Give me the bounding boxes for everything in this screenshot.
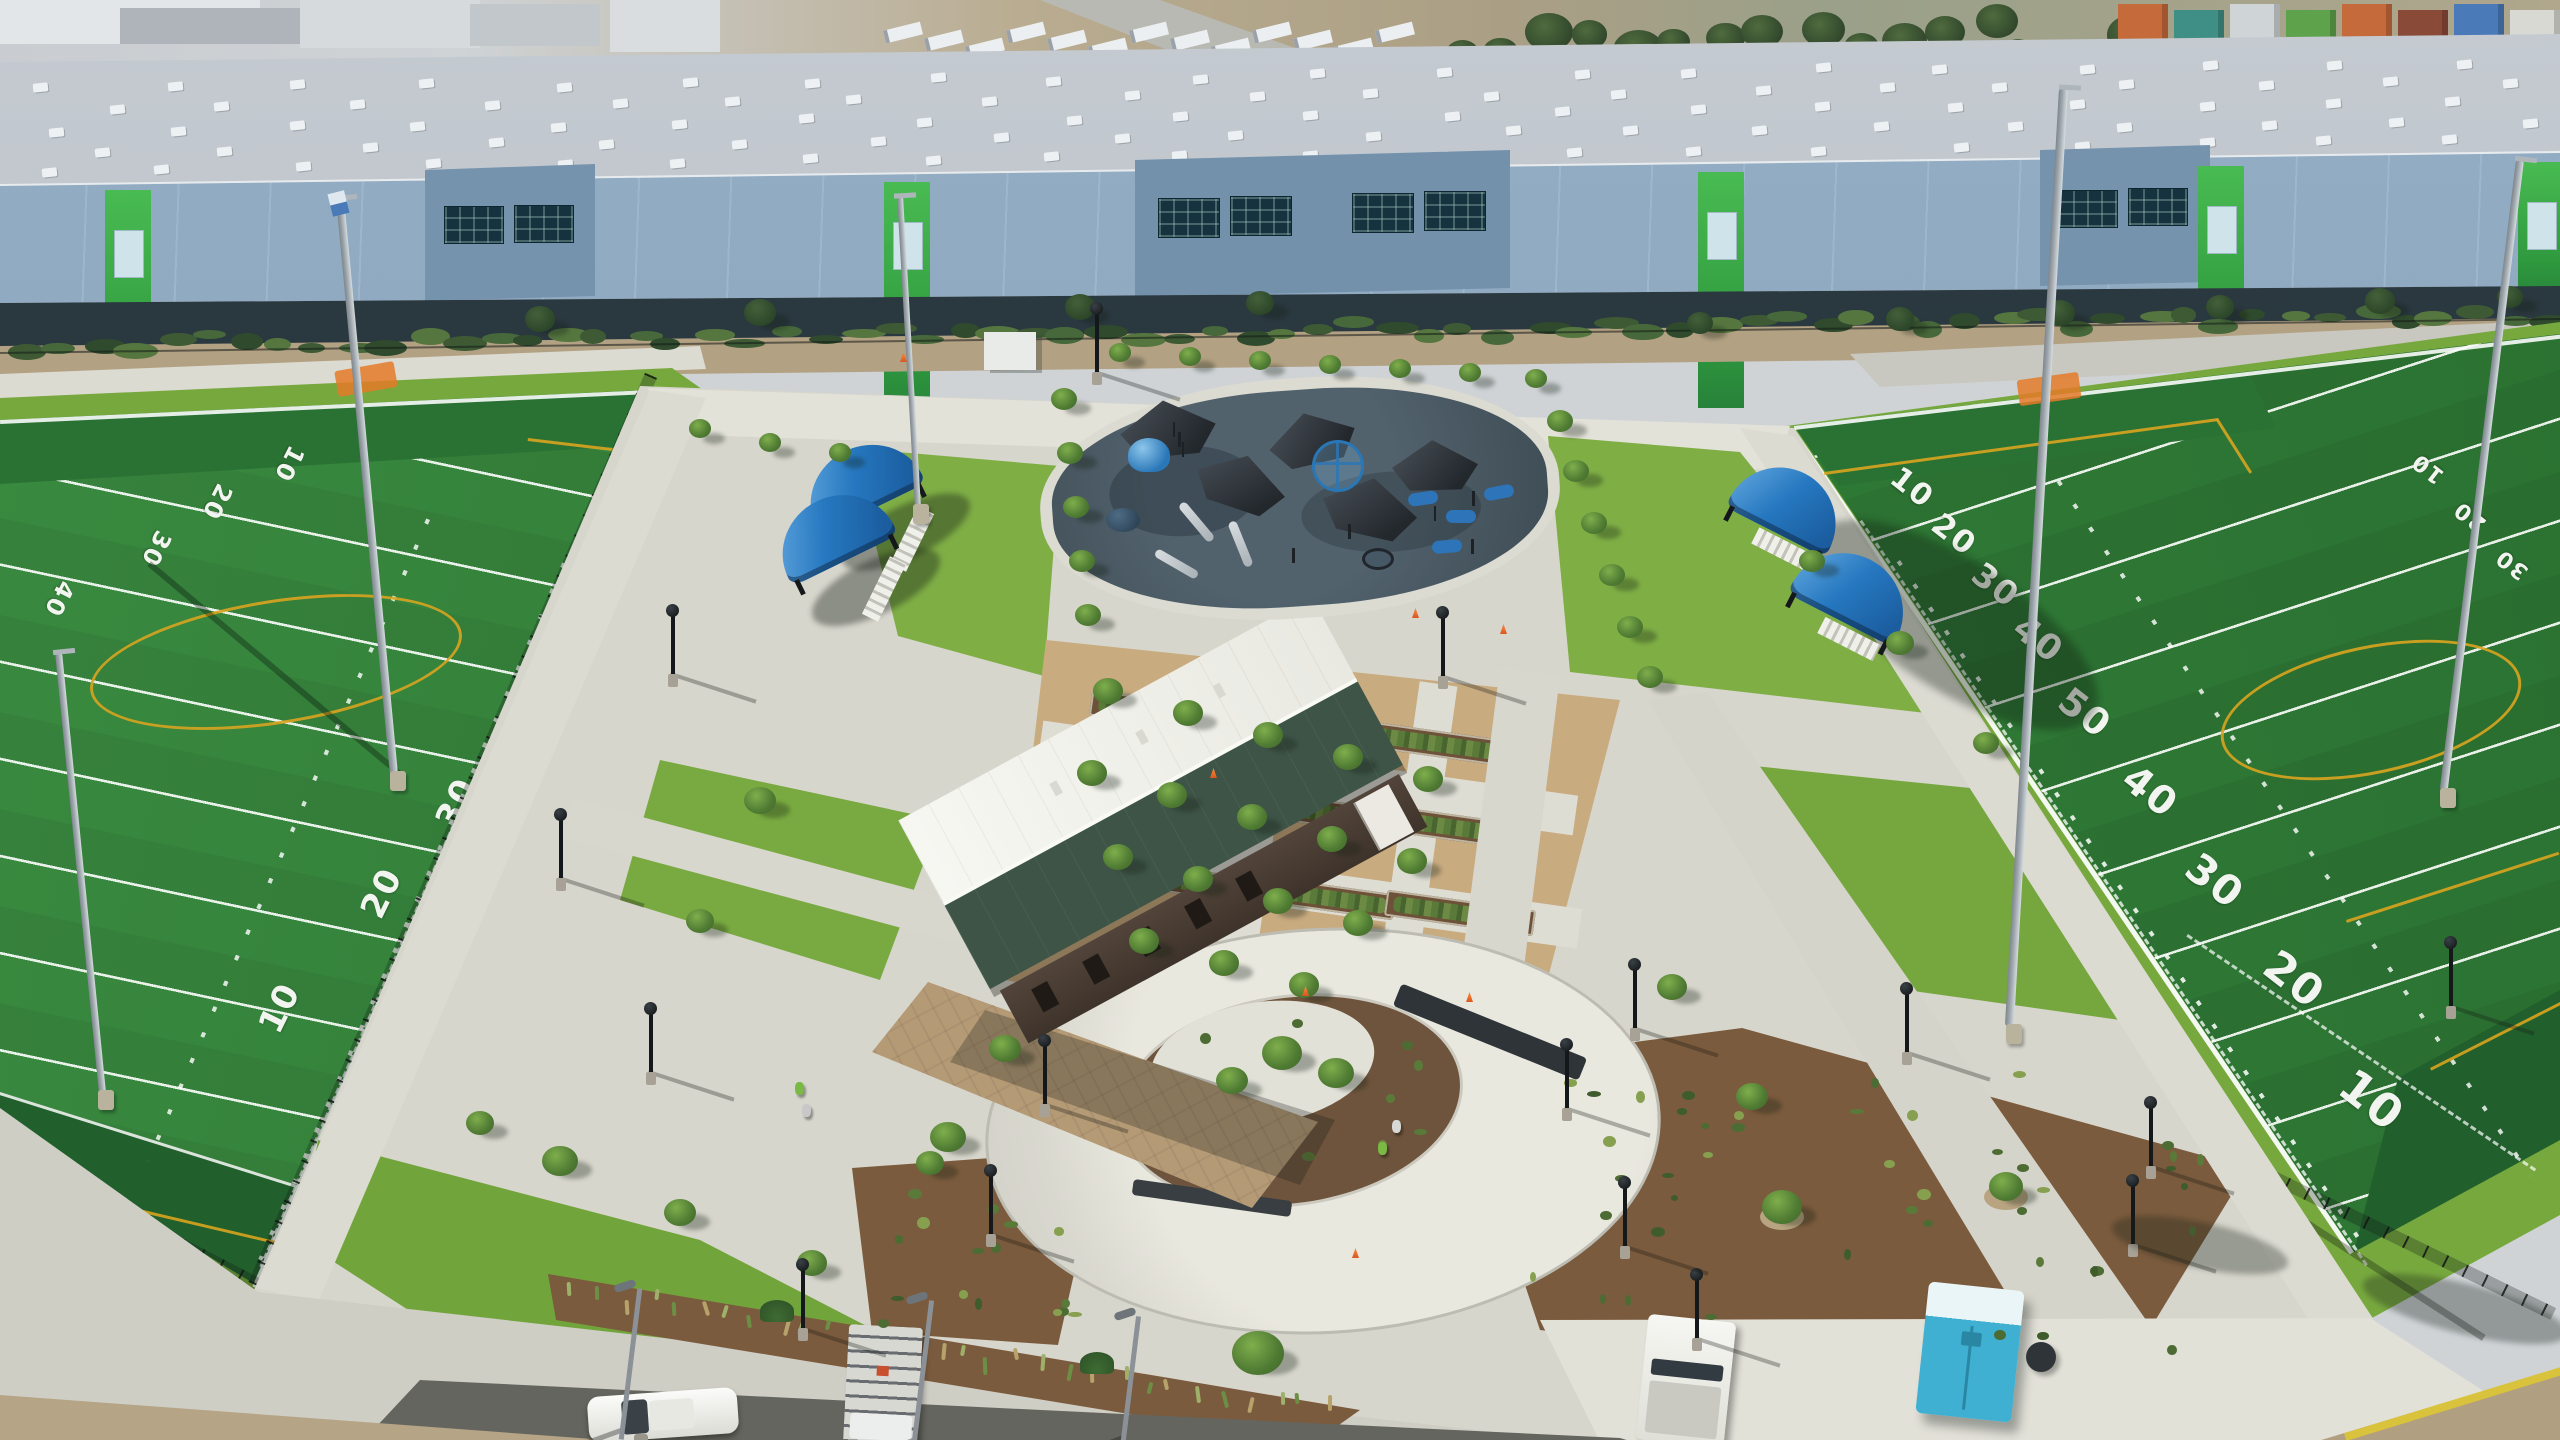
warehouse-window bbox=[1230, 196, 1292, 236]
tree bbox=[1799, 550, 1825, 572]
truck-flag bbox=[876, 1366, 889, 1377]
aerial-park-photo: 102030405010203040 102030405040302010102… bbox=[0, 0, 2560, 1440]
play-globe-climber bbox=[1312, 440, 1364, 492]
pole-base bbox=[2440, 788, 2456, 808]
tree bbox=[1232, 1331, 1284, 1375]
roof-vent bbox=[2389, 117, 2405, 128]
palm-plant bbox=[760, 1300, 794, 1322]
globe-bars bbox=[1336, 443, 1339, 489]
roof-vent bbox=[724, 96, 740, 107]
roof-vent bbox=[1173, 111, 1189, 122]
shrub bbox=[1636, 1091, 1645, 1103]
grass-tuft bbox=[983, 1357, 988, 1375]
roof-vent bbox=[556, 82, 572, 93]
tree bbox=[1109, 343, 1131, 362]
roof-vent bbox=[1756, 85, 1772, 96]
shrub bbox=[1053, 1309, 1063, 1316]
tree bbox=[1069, 550, 1095, 572]
roof-vent bbox=[799, 113, 815, 124]
tree bbox=[1075, 604, 1101, 626]
light-pole-stem bbox=[1095, 312, 1099, 374]
roof-vent bbox=[1228, 130, 1244, 141]
light-pole-stem bbox=[2149, 1106, 2153, 1168]
tree bbox=[759, 433, 781, 452]
light-pole-stem bbox=[1441, 616, 1445, 678]
play-post bbox=[1292, 548, 1295, 563]
tree bbox=[1063, 496, 1089, 518]
shrub bbox=[1731, 1123, 1745, 1132]
roof-vent bbox=[551, 122, 567, 133]
bush bbox=[231, 333, 264, 350]
roof-vent bbox=[1484, 91, 1500, 102]
tree bbox=[1886, 631, 1914, 655]
shrub bbox=[1054, 1227, 1064, 1235]
worker bbox=[1392, 1120, 1401, 1133]
bush bbox=[695, 329, 735, 340]
tree bbox=[1581, 512, 1607, 534]
tree bbox=[1319, 355, 1341, 374]
tree bbox=[1246, 291, 1274, 315]
light-pole-stem bbox=[649, 1012, 653, 1074]
light-pole-base bbox=[2446, 1006, 2456, 1019]
light-pole-head bbox=[644, 1002, 657, 1015]
shrub bbox=[1671, 1195, 1678, 1201]
light-pole-head bbox=[2144, 1096, 2157, 1109]
roof-vent bbox=[2200, 101, 2216, 112]
tree bbox=[1183, 866, 1213, 892]
bush bbox=[1414, 329, 1444, 343]
tree bbox=[525, 306, 555, 332]
bush bbox=[1333, 316, 1374, 328]
roof-vent bbox=[917, 117, 933, 128]
roof-vent bbox=[804, 78, 820, 89]
shrub bbox=[1917, 1189, 1931, 1200]
light-pole-head bbox=[1628, 958, 1641, 971]
roof-vent bbox=[410, 121, 426, 132]
grass-tuft bbox=[1328, 1395, 1332, 1411]
tree bbox=[1262, 1036, 1302, 1070]
pole-base bbox=[390, 771, 406, 791]
bush bbox=[1767, 311, 1807, 322]
green-stripe-window bbox=[114, 230, 144, 278]
shrub bbox=[1682, 1091, 1695, 1100]
roof-vent bbox=[1555, 106, 1571, 117]
roof-vent bbox=[418, 78, 434, 89]
roof-vent bbox=[2007, 121, 2023, 132]
background-tree bbox=[1976, 4, 2018, 38]
tree bbox=[1459, 363, 1481, 382]
light-pole-base bbox=[556, 878, 566, 891]
bush bbox=[2090, 313, 2125, 324]
shrub bbox=[1703, 1152, 1712, 1158]
tree bbox=[1637, 666, 1663, 688]
shrub bbox=[1662, 1173, 1674, 1178]
roof-vent bbox=[2116, 122, 2132, 133]
tree bbox=[1173, 700, 1203, 726]
roof-vent bbox=[925, 155, 941, 166]
tree bbox=[1333, 744, 1363, 770]
roof-vent bbox=[349, 99, 365, 110]
tree bbox=[829, 443, 851, 462]
shrub bbox=[1677, 1108, 1687, 1114]
light-pole-stem bbox=[559, 818, 563, 880]
grass-tuft bbox=[566, 1282, 571, 1297]
bush bbox=[2282, 311, 2310, 321]
toilet-vent bbox=[1961, 1331, 1982, 1347]
roof-vent bbox=[670, 158, 686, 169]
tree bbox=[930, 1122, 966, 1153]
shrub bbox=[1923, 1220, 1933, 1227]
light-pole-stem bbox=[1043, 1044, 1047, 1106]
green-stripe-window bbox=[2207, 206, 2237, 254]
pole-base bbox=[2006, 1024, 2022, 1044]
portable-toilet bbox=[1915, 1281, 2024, 1422]
tree bbox=[1547, 410, 1573, 432]
roof-vent bbox=[1610, 89, 1626, 100]
shrub bbox=[1651, 1227, 1665, 1237]
light-pole-base bbox=[798, 1328, 808, 1341]
grass-tuft bbox=[625, 1300, 630, 1315]
warehouse-window bbox=[514, 205, 574, 243]
play-rock bbox=[1106, 508, 1140, 532]
roof-vent bbox=[296, 161, 312, 172]
light-pole-base bbox=[1438, 676, 1448, 689]
truck-cab bbox=[849, 1412, 912, 1440]
play-post bbox=[1434, 506, 1437, 521]
tree bbox=[1209, 950, 1239, 976]
roof-vent bbox=[1816, 62, 1832, 73]
bush bbox=[2456, 305, 2493, 319]
roof-vent bbox=[1567, 147, 1583, 158]
roof-vent bbox=[2502, 78, 2518, 89]
tree bbox=[686, 909, 714, 933]
background-building bbox=[300, 0, 480, 48]
tree bbox=[542, 1146, 578, 1177]
shrub bbox=[959, 1290, 968, 1298]
tree bbox=[1237, 804, 1267, 830]
roof-vent bbox=[598, 139, 614, 150]
light-pole-stem bbox=[1905, 992, 1909, 1054]
roof-vent bbox=[1574, 70, 1590, 81]
light-pole-stem bbox=[801, 1268, 805, 1330]
tree bbox=[1413, 766, 1443, 792]
bush bbox=[1268, 329, 1295, 339]
roof-vent bbox=[2315, 135, 2331, 146]
shrub bbox=[1061, 1299, 1069, 1308]
shrub bbox=[1600, 1211, 1611, 1221]
shrub bbox=[1603, 1136, 1616, 1147]
light-pole-head bbox=[2126, 1174, 2139, 1187]
palm-plant bbox=[1080, 1352, 1114, 1374]
shrub bbox=[1992, 1149, 2003, 1155]
roof-vent bbox=[109, 104, 125, 115]
tree bbox=[2365, 288, 2395, 314]
play-post bbox=[1348, 524, 1351, 539]
shrub bbox=[895, 1235, 903, 1244]
shrub bbox=[2162, 1141, 2174, 1150]
shrub bbox=[1871, 1078, 1879, 1088]
shrub bbox=[1705, 1314, 1716, 1320]
tree bbox=[1389, 359, 1411, 378]
light-pole-stem bbox=[1695, 1278, 1699, 1340]
light-pole-base bbox=[1092, 372, 1102, 385]
background-building bbox=[610, 0, 720, 52]
light-pole-base bbox=[1620, 1246, 1630, 1259]
roof-vent bbox=[2382, 76, 2398, 87]
shrub bbox=[1906, 1206, 1918, 1214]
roof-vent bbox=[1303, 110, 1319, 121]
tree bbox=[1563, 460, 1589, 482]
roof-vent bbox=[2441, 135, 2457, 146]
play-post bbox=[1471, 539, 1474, 554]
roof-vent bbox=[489, 137, 505, 148]
tree bbox=[1657, 974, 1687, 1000]
bush bbox=[1202, 326, 1228, 336]
light-pole-head bbox=[1038, 1034, 1051, 1047]
shrub bbox=[1994, 1330, 2005, 1341]
roof-vent bbox=[1623, 125, 1639, 136]
light-pole-head bbox=[1618, 1176, 1631, 1189]
shrub bbox=[2197, 1154, 2204, 1166]
tree bbox=[916, 1151, 944, 1175]
light-pole-stem bbox=[2449, 946, 2453, 1008]
light-pole-base bbox=[668, 674, 678, 687]
light-pole-stem bbox=[1633, 968, 1637, 1030]
crescent-shrub bbox=[1292, 1019, 1303, 1028]
roof-vent bbox=[2457, 59, 2473, 70]
tree bbox=[1179, 347, 1201, 366]
tree bbox=[1397, 848, 1427, 874]
roof-vent bbox=[981, 96, 997, 107]
shrub bbox=[1701, 1123, 1710, 1128]
roof-vent bbox=[930, 72, 946, 83]
light-pole-base bbox=[1902, 1052, 1912, 1065]
roof-vent bbox=[1045, 76, 1061, 87]
roof-vent bbox=[94, 147, 110, 158]
shrub bbox=[917, 1217, 930, 1229]
green-stripe-window bbox=[893, 222, 923, 270]
roof-vent bbox=[213, 101, 229, 112]
roof-vent bbox=[1444, 111, 1460, 122]
shipping-container bbox=[2118, 4, 2168, 44]
tree bbox=[1263, 888, 1293, 914]
play-spinner bbox=[1362, 548, 1394, 570]
play-post bbox=[1178, 432, 1181, 447]
tree bbox=[1051, 388, 1077, 410]
roof-vent bbox=[2522, 118, 2538, 129]
roof-vent bbox=[1751, 126, 1767, 137]
bush bbox=[2171, 307, 2196, 322]
street-lamp-base bbox=[634, 1434, 648, 1440]
roof-vent bbox=[485, 100, 501, 111]
tree bbox=[1973, 732, 1999, 754]
warehouse-window bbox=[2058, 190, 2118, 228]
roof-vent bbox=[42, 167, 58, 178]
tree bbox=[1599, 564, 1625, 586]
roof-vent bbox=[1931, 64, 1947, 75]
roof-vent bbox=[1193, 74, 1209, 85]
tree bbox=[1617, 616, 1643, 638]
tree bbox=[1886, 307, 1914, 331]
shrub bbox=[1004, 1221, 1019, 1227]
roof-vent bbox=[32, 82, 48, 93]
tree bbox=[1343, 910, 1373, 936]
roof-vent bbox=[2079, 64, 2095, 75]
roof-vent bbox=[48, 127, 64, 138]
light-pole-base bbox=[986, 1234, 996, 1247]
shrub bbox=[2167, 1345, 2177, 1356]
light-pole-base bbox=[1040, 1104, 1050, 1117]
roof-vent bbox=[426, 158, 442, 169]
roof-vent bbox=[2202, 60, 2218, 71]
roof-vent bbox=[1686, 146, 1702, 157]
shrub bbox=[1907, 1110, 1918, 1121]
tree bbox=[1317, 826, 1347, 852]
play-dome bbox=[1128, 438, 1170, 472]
car-roof bbox=[649, 1398, 695, 1431]
green-stripe-window bbox=[1707, 212, 1737, 260]
roof-vent bbox=[846, 94, 862, 105]
warehouse-window bbox=[1352, 193, 1414, 233]
roof-vent bbox=[1114, 133, 1130, 144]
light-pole-base bbox=[1692, 1338, 1702, 1351]
tree bbox=[1525, 369, 1547, 388]
warehouse-window bbox=[444, 206, 504, 244]
roof-vent bbox=[171, 126, 187, 137]
shrub bbox=[2017, 1207, 2028, 1215]
shrub bbox=[1530, 1272, 1536, 1282]
light-pole-base bbox=[1630, 1028, 1640, 1041]
background-building bbox=[470, 4, 600, 46]
pickup-windshield bbox=[1651, 1358, 1724, 1381]
tree bbox=[1129, 928, 1159, 954]
green-accent-stripe bbox=[1698, 172, 1744, 408]
light-pole-base bbox=[646, 1072, 656, 1085]
play-post bbox=[1472, 491, 1475, 506]
roof-vent bbox=[1811, 146, 1827, 157]
tree bbox=[1077, 760, 1107, 786]
play-post bbox=[1173, 422, 1176, 437]
warehouse-window bbox=[2128, 188, 2188, 226]
worker bbox=[1378, 1142, 1387, 1155]
tree bbox=[1093, 678, 1123, 704]
tree bbox=[1253, 722, 1283, 748]
white-pickup-truck bbox=[1636, 1314, 1737, 1440]
green-stripe-window bbox=[2527, 202, 2557, 250]
roof-vent bbox=[217, 146, 233, 157]
tree bbox=[1249, 351, 1271, 370]
tree bbox=[1103, 844, 1133, 870]
roof-vent bbox=[802, 153, 818, 164]
shrub bbox=[1884, 1160, 1895, 1168]
light-pole-head bbox=[554, 808, 567, 821]
light-pole-head bbox=[666, 604, 679, 617]
tree bbox=[1762, 1190, 1802, 1224]
light-pole-head bbox=[1436, 606, 1449, 619]
roof-vent bbox=[1506, 125, 1522, 136]
tree bbox=[466, 1111, 494, 1135]
grass-tuft bbox=[672, 1302, 677, 1317]
roof-vent bbox=[1067, 115, 1083, 126]
light-pole-head bbox=[1560, 1038, 1573, 1051]
worker bbox=[795, 1082, 804, 1095]
light-pole-head bbox=[1900, 982, 1913, 995]
roof-vent bbox=[1953, 142, 1969, 153]
warehouse-window bbox=[1158, 198, 1220, 238]
light-pole-stem bbox=[1623, 1186, 1627, 1248]
roof-vent bbox=[612, 98, 628, 109]
roof-vent bbox=[2445, 96, 2461, 107]
play-climber-blue bbox=[1446, 510, 1476, 523]
light-pole-stem bbox=[671, 614, 675, 676]
pickup-bed bbox=[1644, 1380, 1721, 1439]
shrub bbox=[2037, 1332, 2049, 1341]
light-pole-head bbox=[1090, 302, 1103, 315]
utility-shed bbox=[984, 332, 1036, 370]
roof-vent bbox=[362, 142, 378, 153]
pole-base bbox=[913, 504, 929, 524]
light-pole-stem bbox=[1565, 1048, 1569, 1110]
roof-vent bbox=[1366, 131, 1382, 142]
roof-vent bbox=[2327, 60, 2343, 71]
roof-vent bbox=[290, 120, 306, 131]
grass-tuft bbox=[1040, 1354, 1045, 1371]
roof-vent bbox=[2119, 79, 2135, 90]
utility-truck bbox=[843, 1324, 923, 1440]
background-tree bbox=[1572, 20, 1607, 48]
light-pole-head bbox=[2444, 936, 2457, 949]
light-pole-base bbox=[1562, 1108, 1572, 1121]
shrub bbox=[972, 1248, 983, 1254]
tree bbox=[2206, 295, 2234, 319]
pole-base bbox=[98, 1090, 114, 1110]
grass-tuft bbox=[595, 1286, 599, 1300]
roof-vent bbox=[672, 119, 688, 130]
tree bbox=[1318, 1058, 1354, 1089]
shrub bbox=[2170, 1151, 2178, 1162]
trash-can bbox=[2026, 1342, 2056, 1372]
bush bbox=[443, 336, 487, 351]
tree bbox=[1057, 442, 1083, 464]
tree bbox=[1687, 312, 1713, 334]
bush bbox=[580, 329, 606, 345]
light-pole-base bbox=[2146, 1166, 2156, 1179]
roof-vent bbox=[1814, 101, 1830, 112]
light-pole-stem bbox=[989, 1174, 993, 1236]
roof-vent bbox=[1681, 68, 1697, 79]
roof-vent bbox=[1043, 151, 1059, 162]
roof-vent bbox=[289, 79, 305, 90]
grass-tuft bbox=[1281, 1392, 1285, 1405]
play-post bbox=[1182, 442, 1185, 457]
tree bbox=[1157, 782, 1187, 808]
light-pole-head bbox=[796, 1258, 809, 1271]
roof-vent bbox=[1947, 102, 1963, 113]
worker bbox=[802, 1104, 811, 1117]
tree bbox=[689, 419, 711, 438]
warehouse-window bbox=[1424, 191, 1486, 231]
roof-vent bbox=[1690, 104, 1706, 115]
background-tree bbox=[1802, 12, 1845, 47]
bush bbox=[160, 333, 197, 346]
light-pole-head bbox=[984, 1164, 997, 1177]
